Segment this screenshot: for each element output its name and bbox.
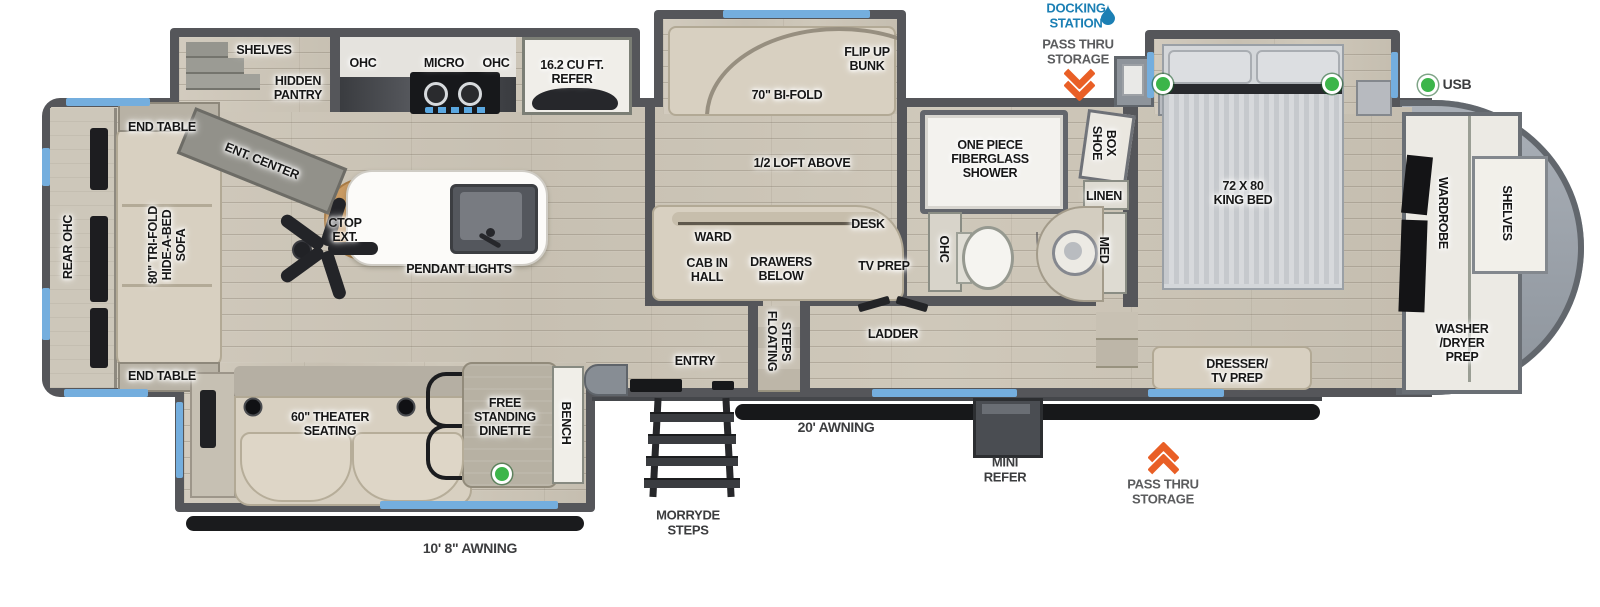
pillow bbox=[1168, 50, 1252, 84]
floating-step bbox=[758, 369, 800, 392]
label-sofa: 80" TRI-FOLD HIDE-A-BED SOFA bbox=[146, 206, 188, 284]
bed-window-right bbox=[1391, 52, 1398, 98]
label-shelves: SHELVES bbox=[236, 43, 291, 57]
label-floating-steps: FLOATING STEPS bbox=[765, 311, 793, 372]
label-mini-refer: MINI REFER bbox=[984, 455, 1027, 484]
bed-rail bbox=[1164, 84, 1342, 94]
wall-steps-right bbox=[800, 306, 810, 390]
rear-window-slot bbox=[90, 308, 108, 368]
label-bi-fold: 70" BI-FOLD bbox=[752, 88, 823, 102]
dinette-chair bbox=[426, 372, 462, 428]
closet-doorway-panel bbox=[1398, 220, 1427, 313]
cupholder bbox=[397, 398, 416, 417]
label-ladder: LADDER bbox=[868, 327, 918, 341]
rear-window-slot bbox=[90, 216, 108, 302]
pantry-shelf-step bbox=[186, 74, 260, 90]
burner bbox=[458, 82, 482, 106]
cupholder bbox=[244, 398, 263, 417]
label-ohc-right: OHC bbox=[483, 56, 510, 70]
label-linen: LINEN bbox=[1086, 189, 1122, 203]
label-usb: USB bbox=[1443, 77, 1472, 93]
stove-knobs bbox=[425, 107, 489, 113]
theater-cushion bbox=[240, 432, 352, 502]
pantry-shelf-step bbox=[186, 58, 244, 74]
bedroom-step bbox=[1096, 340, 1138, 368]
label-drawers-below: DRAWERS BELOW bbox=[750, 255, 812, 283]
label-docking-station: DOCKING STATION bbox=[1046, 1, 1105, 30]
label-end-table-top: END TABLE bbox=[128, 120, 196, 134]
label-morryde: MORRYDE STEPS bbox=[656, 508, 720, 537]
fan-blade bbox=[320, 249, 348, 301]
label-theater: 60" THEATER SEATING bbox=[291, 410, 369, 438]
label-wardrobe: WARDROBE bbox=[1436, 177, 1450, 249]
pantry-wall bbox=[330, 37, 340, 112]
label-ctop-ext: CTOP EXT. bbox=[328, 216, 361, 244]
ceiling-fan bbox=[248, 196, 352, 300]
steps-rung bbox=[650, 412, 734, 422]
steps-rung bbox=[644, 478, 740, 488]
rear-window-left-2 bbox=[42, 288, 50, 340]
sofa-cushion-line bbox=[122, 284, 212, 287]
entry-door-opening bbox=[630, 379, 682, 392]
theater-window-bottom bbox=[380, 501, 558, 509]
label-pendant-lights: PENDANT LIGHTS bbox=[406, 262, 512, 276]
label-micro: MICRO bbox=[424, 56, 464, 70]
label-refer: 16.2 CU FT. REFER bbox=[540, 58, 603, 86]
bath-sink-drain bbox=[1064, 242, 1082, 260]
label-king-bed: 72 X 80 KING BED bbox=[1214, 179, 1273, 207]
rear-window-bottom bbox=[64, 389, 148, 397]
label-loft-above: 1/2 LOFT ABOVE bbox=[754, 156, 851, 170]
refrigerator-door bbox=[532, 88, 618, 110]
bunk-window bbox=[723, 10, 870, 18]
water-drop-icon bbox=[1100, 4, 1116, 25]
awning-rail bbox=[592, 397, 1322, 401]
faucet-base bbox=[486, 228, 495, 237]
label-dinette: FREE STANDING DINETTE bbox=[474, 396, 536, 438]
usb-indicator-dot bbox=[1418, 75, 1438, 95]
label-end-table-bottom: END TABLE bbox=[128, 369, 196, 383]
usb-indicator-dot bbox=[1322, 74, 1342, 94]
label-med: MED bbox=[1097, 237, 1111, 264]
label-ward: WARD bbox=[695, 230, 732, 244]
label-entry: ENTRY bbox=[675, 354, 715, 368]
label-washer-dryer: WASHER /DRYER PREP bbox=[1435, 322, 1488, 364]
rear-window-slot bbox=[90, 128, 108, 190]
usb-indicator-dot bbox=[492, 464, 512, 484]
label-ohc-bath: OHC bbox=[937, 236, 951, 263]
nightstand-right bbox=[1356, 80, 1392, 116]
theater-window-left bbox=[176, 402, 183, 478]
bedroom-window-bottom bbox=[1148, 389, 1224, 397]
label-awning-20: 20' AWNING bbox=[798, 420, 875, 436]
hall-window-bottom bbox=[872, 389, 1017, 397]
desk-edge bbox=[678, 222, 874, 225]
label-hidden-pantry: HIDDEN PANTRY bbox=[274, 74, 322, 102]
label-rear-ohc: REAR OHC bbox=[61, 215, 75, 279]
steps-rung bbox=[646, 456, 738, 466]
steps-rung bbox=[648, 434, 736, 444]
rv-floorplan: ENT. CENTER bbox=[0, 0, 1600, 607]
label-desk: DESK bbox=[851, 217, 885, 231]
theater-side-slot bbox=[200, 390, 216, 448]
label-shower: ONE PIECE FIBERGLASS SHOWER bbox=[951, 138, 1029, 180]
entry-door-opening bbox=[712, 381, 734, 390]
label-shelves-front: SHELVES bbox=[1500, 185, 1514, 240]
label-dresser: DRESSER/ TV PREP bbox=[1206, 357, 1268, 385]
bed-window-left bbox=[1147, 52, 1154, 98]
rear-window-left-1 bbox=[42, 148, 50, 186]
entry-grab-handle bbox=[584, 364, 628, 396]
awning-10-tube bbox=[186, 516, 584, 531]
label-ohc-left: OHC bbox=[350, 56, 377, 70]
label-shoe-box: SHOE BOX bbox=[1090, 126, 1118, 160]
pantry-shelf-step bbox=[186, 42, 228, 58]
usb-indicator-dot bbox=[1153, 74, 1173, 94]
toilet bbox=[962, 226, 1014, 290]
label-awning-10: 10' 8" AWNING bbox=[423, 541, 517, 557]
rear-window-top bbox=[66, 98, 150, 106]
passthru-door bbox=[1122, 64, 1144, 96]
label-ent-center: ENT. CENTER bbox=[223, 140, 301, 182]
bedroom-step bbox=[1096, 312, 1138, 340]
label-tv-prep: TV PREP bbox=[858, 259, 909, 273]
label-bench: BENCH bbox=[559, 402, 573, 445]
mini-refer-top bbox=[982, 404, 1030, 414]
dinette-chair bbox=[426, 424, 462, 480]
king-bed bbox=[1162, 44, 1344, 290]
burner bbox=[424, 82, 448, 106]
wall-steps-left bbox=[748, 306, 758, 390]
label-cab-in-hall: CAB IN HALL bbox=[686, 256, 727, 284]
label-flip-up-bunk: FLIP UP BUNK bbox=[844, 45, 890, 73]
